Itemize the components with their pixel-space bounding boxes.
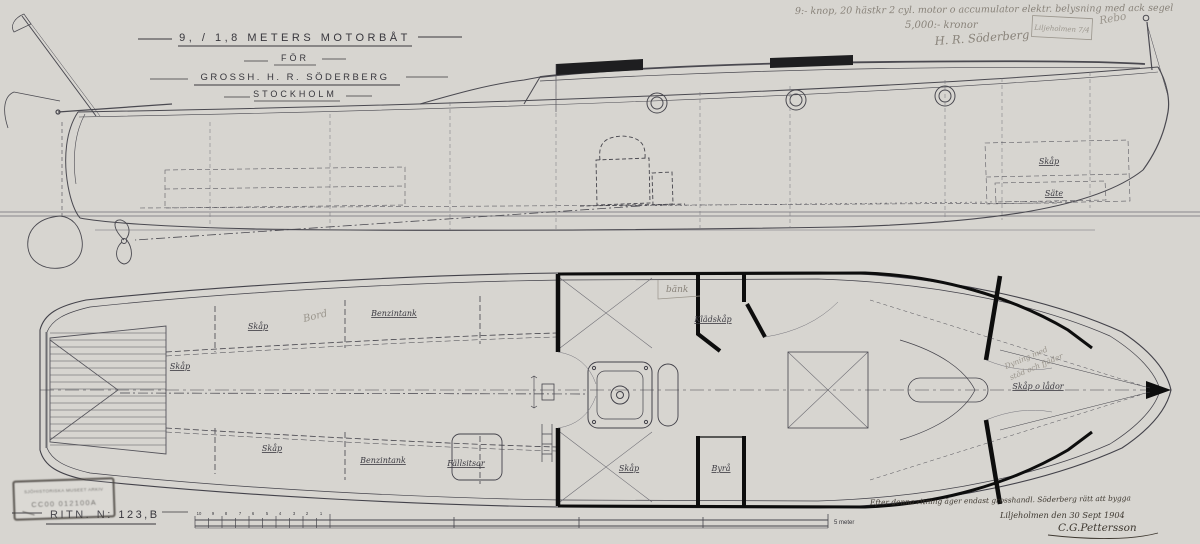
flag-pennant — [12, 14, 31, 32]
scale-tick: 8 — [225, 511, 228, 516]
compartment-label: Skåp — [1039, 157, 1059, 166]
price-note: 5,000:- kronor — [905, 20, 979, 31]
scale-tick: 10 — [197, 511, 202, 516]
compartment-label: Skåp — [170, 362, 190, 371]
title-line-1: 9, / 1,8 METERS MOTORBÅT — [179, 31, 411, 44]
scale-tick: 6 — [252, 511, 255, 516]
cabin-hatch-fore — [770, 55, 853, 68]
shaft-line-plan — [120, 393, 588, 394]
scale-tick: 7 — [239, 511, 242, 516]
ink-annotations: Efter denna ritning äger endast grosshan… — [869, 493, 1158, 538]
compartment-label: Benzintank — [359, 456, 406, 465]
interior-profile — [140, 140, 1130, 208]
compartment-label: Skåp — [262, 444, 282, 453]
companion-ladder — [542, 424, 552, 462]
bench-note-group: bänk — [658, 280, 700, 299]
scale-unit-label: 5 meter — [834, 520, 854, 526]
box-note: Liljeholmen 7/4 — [1033, 24, 1090, 35]
folding-seat — [452, 434, 502, 480]
compartment-label: Benzintank — [370, 309, 417, 318]
compartment-label: Skåp — [619, 464, 639, 473]
drawing-sheet: Skåp Säte — [0, 0, 1200, 544]
cabin-hatch-aft — [556, 59, 643, 75]
compartment-label: Klädskåp — [693, 315, 731, 324]
compartment-label: Byrå — [711, 464, 731, 473]
designer-signature: C.G.Pettersson — [1058, 522, 1137, 534]
compartment-label: Säte — [1045, 189, 1063, 198]
compartment-label: Skåp — [248, 322, 268, 331]
title-line-4: STOCKHOLM — [253, 89, 337, 99]
engine-plan — [588, 362, 678, 428]
scale-tick: 5 — [266, 511, 269, 516]
stuffing-box — [542, 384, 554, 400]
compartment-label: Skåp o lådor — [1012, 382, 1064, 391]
archive-stamp: SJÖHISTORISKA MUSEET ARKIV CC00 012100A — [13, 478, 114, 519]
engine-profile — [580, 136, 685, 206]
datum-lines — [0, 212, 1200, 230]
scale-tick: 4 — [279, 511, 282, 516]
rudder — [28, 122, 83, 268]
table-note: Bord — [301, 308, 328, 325]
scale-tick: 9 — [212, 511, 215, 516]
jackstaff — [1143, 15, 1168, 96]
bow-tip — [1146, 381, 1171, 399]
title-block: 9, / 1,8 METERS MOTORBÅT FÖR GROSSH. H. … — [138, 31, 462, 101]
stern-davit — [5, 92, 60, 128]
scale-tick: 3 — [293, 511, 296, 516]
title-line-2: FÖR — [281, 53, 309, 63]
tiller — [56, 104, 172, 114]
scale-tick: 2 — [306, 511, 309, 516]
compartment-label: Fällsitsar — [446, 459, 486, 468]
hull-profile — [66, 67, 1169, 230]
propeller-shaft — [135, 206, 640, 240]
bench-note: bänk — [666, 285, 688, 295]
place-date: Liljeholmen den 30 Sept 1904 — [999, 510, 1125, 520]
muffler — [658, 364, 678, 426]
cabin-trunk — [420, 55, 1145, 112]
propeller — [115, 220, 131, 264]
pencil-annotations: 9:- knop, 20 hästkr 2 cyl. motor o accum… — [301, 3, 1173, 382]
scale-tick: 1 — [320, 511, 323, 516]
door-swings — [558, 302, 1052, 428]
plan-view: Skåp Skåp Benzintank Skåp Benzintank Fäl… — [40, 272, 1171, 508]
mast — [5, 14, 100, 128]
title-line-3: GROSSH. H. R. SÖDERBERG — [201, 72, 390, 83]
rights-note: Efter denna ritning äger endast grosshan… — [869, 493, 1131, 507]
dimension-line — [531, 376, 537, 408]
scale-bar: 10 9 8 7 6 5 4 3 2 1 5 meter — [195, 511, 854, 528]
